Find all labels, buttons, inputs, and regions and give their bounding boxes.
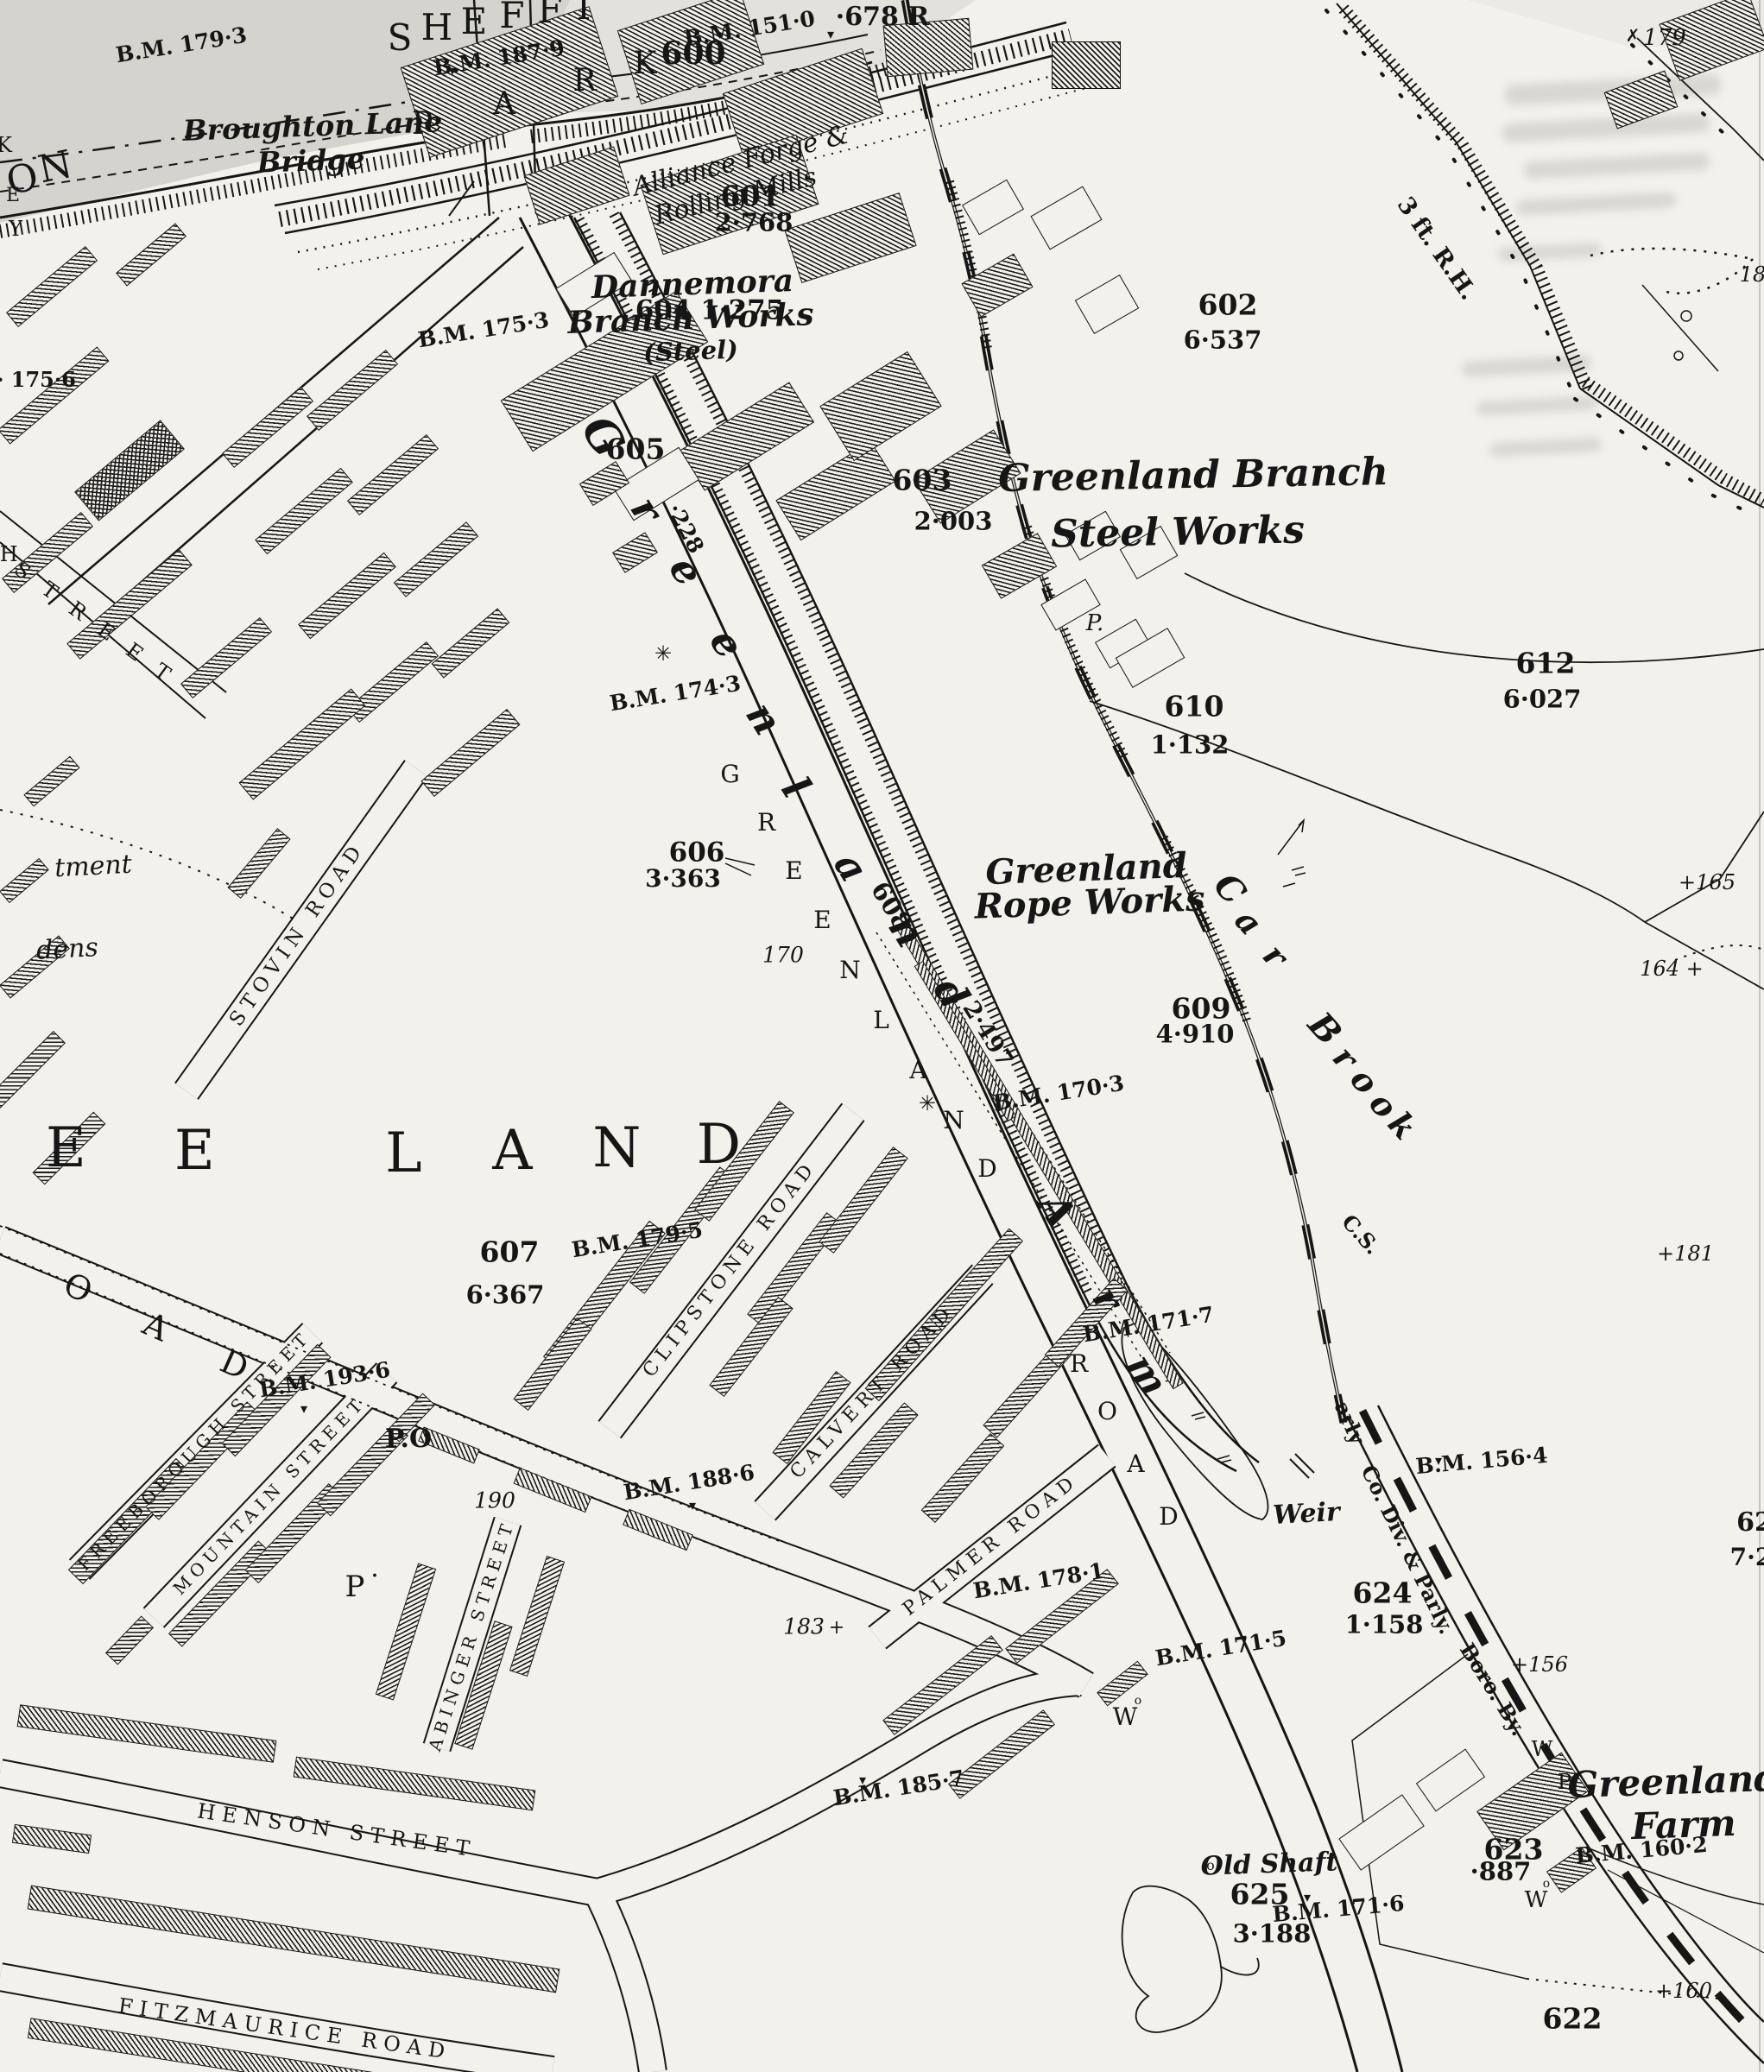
street-henson: HENSON STREET — [196, 1800, 477, 1860]
area-625: 3·188 — [1233, 1922, 1312, 1947]
well-label: W — [1113, 1705, 1138, 1729]
dannemora-works-label: Branch Works — [567, 299, 814, 338]
parcel-610: 610 — [1165, 692, 1224, 721]
well-label: W — [1525, 1889, 1548, 1911]
parcel-678: ·678 R — [836, 4, 929, 30]
canal-name-letter: E — [461, 3, 488, 40]
boundary-cs: C.S. — [1338, 1211, 1384, 1259]
spot-mark: ✗ — [1626, 27, 1641, 44]
greenland-road-letter: R — [757, 811, 783, 835]
car-brook-letter: r — [1327, 1040, 1363, 1075]
greenland-road-letter: A — [1127, 1452, 1152, 1476]
edge-fragment: Y — [9, 218, 22, 239]
area-608: 2·497 — [958, 997, 1017, 1071]
area-606: 3·363 — [645, 867, 721, 891]
car-brook-letter: a — [1230, 903, 1268, 941]
area-603: 2·003 — [914, 509, 993, 534]
boundary-w: W — [1532, 1739, 1553, 1759]
spot-height-164: 164 + — [1640, 958, 1704, 979]
benchmark-175-6: · 175·6 — [0, 370, 76, 390]
edge-fragment: E — [6, 186, 20, 205]
canal-name-letter: F — [537, 0, 562, 28]
benchmark-174-3: B.M. 174·3 — [608, 673, 742, 715]
benchmark-171-5: B.M. 171·5 — [1154, 1627, 1287, 1670]
broughton-lane-bridge-label: Broughton Lane — [182, 107, 443, 144]
greenland-arm-letter: a — [828, 845, 876, 888]
broughton-lane-bridge-label: Bridge — [256, 144, 365, 176]
bm-arrow: ▾ — [300, 1402, 307, 1416]
parcel-622: 622 — [1543, 2005, 1603, 2033]
benchmark-171-6: B.M. 171·6 — [1272, 1892, 1406, 1925]
greenland-road-letter: N — [943, 1109, 971, 1133]
greenland-arm-letter: m — [1120, 1349, 1173, 1403]
edge-parcel-fragment: 62 — [1736, 1510, 1764, 1536]
car-brook-letter: C — [1207, 868, 1251, 911]
area-607: 6·367 — [466, 1283, 545, 1308]
spot-height-170: 170 — [762, 944, 804, 966]
street-fragment: S T R E E T — [10, 558, 179, 688]
spot-height-181: +181 — [1657, 1243, 1714, 1264]
street-fitzmaurice: FITZMAURICE ROAD — [117, 1995, 453, 2063]
area-612: 6·027 — [1503, 687, 1582, 712]
pump-label: P. — [1086, 612, 1104, 635]
benchmark-179-3: B.M. 179·3 — [114, 24, 248, 66]
spot-height-183: 183 — [783, 1616, 825, 1638]
old-shaft-label: Old Shaft — [1200, 1849, 1338, 1880]
parcel-601: 601 — [721, 182, 781, 211]
greenland-road-letter: E — [813, 908, 838, 932]
street-calvert: CALVERT ROAD — [787, 1301, 958, 1482]
area-601: 2·768 — [715, 211, 793, 236]
spot-height-156: +156 — [1511, 1654, 1568, 1675]
parcel-607: 607 — [480, 1238, 540, 1267]
benchmark-175-3: B.M. 175·3 — [416, 309, 550, 351]
district-letter: E — [46, 1121, 87, 1176]
bm-mark: ✳ — [919, 1093, 936, 1114]
spot-mark: + — [829, 1619, 844, 1638]
greenland-arm-letter: e — [704, 622, 751, 664]
area-605: ·228 — [664, 500, 708, 557]
edge-letter: N — [35, 145, 76, 189]
greenland-branch-steel-works-label: Greenland Branch — [998, 453, 1388, 498]
allotment-fragment: tment — [54, 852, 132, 882]
bm-arrow: ▾ — [827, 28, 834, 41]
greenland-branch-steel-works-label: Steel Works — [1051, 511, 1305, 553]
canal-name-letter: H — [421, 9, 453, 46]
parcel-624: 624 — [1353, 1579, 1413, 1608]
canal-name-letter: F — [499, 0, 524, 34]
edge-fragment: 18 — [1740, 264, 1764, 285]
park-letter: K — [634, 48, 657, 79]
street-clipstone: CLIPSTONE ROAD — [640, 1157, 820, 1380]
parcel-606: 606 — [669, 840, 725, 867]
pump-label: P — [345, 1572, 365, 1601]
benchmark-156-4: B.M. 156·4 — [1415, 1444, 1549, 1477]
district-letter: L — [385, 1126, 423, 1181]
spot-height-190: 190 — [474, 1490, 515, 1512]
greenland-arm-letter: r — [1085, 1281, 1129, 1318]
road-letter: A — [138, 1307, 183, 1351]
greenland-road-letter: A — [909, 1058, 934, 1083]
parcel-600: 600 — [661, 38, 725, 69]
park-letter: R — [572, 66, 596, 97]
parcel-612: 612 — [1516, 649, 1576, 678]
labels-layer: B.M. 179·3SHEFFI▾B.M. 187·9B.M. 151·0▾·6… — [0, 0, 1764, 2072]
boundary-parly-fragment: arly — [1331, 1399, 1369, 1448]
street-stovin-road: STOVIN ROAD — [226, 838, 369, 1030]
weir-label: Weir — [1272, 1500, 1340, 1529]
greenland-road-letter: O — [1097, 1399, 1125, 1424]
edge-area-fragment: 7·2 — [1730, 1545, 1764, 1570]
bm-arrow: ▾ — [689, 1499, 696, 1513]
edge-fragment: K — [0, 135, 12, 155]
greenland-road-letter: R — [1070, 1352, 1096, 1376]
point-mark: · — [370, 1563, 379, 1589]
benchmark-179-5: B.M. 179·5 — [570, 1219, 704, 1261]
street-freeborough: FREEBOROUGH STREET — [75, 1327, 314, 1573]
road-letter: O — [59, 1267, 106, 1312]
bm-arrow: ▾ — [859, 1773, 866, 1787]
spot-height-165: +165 — [1679, 872, 1736, 893]
spot-height-179: 179 — [1643, 27, 1686, 49]
bm-mark: ✳ — [654, 643, 672, 664]
greenland-road-letter: D — [977, 1157, 1004, 1181]
greenland-road-letter: E — [785, 859, 810, 883]
greenland-farm-label: Greenland — [1567, 1760, 1764, 1804]
greenland-road-letter: D — [1159, 1505, 1185, 1529]
district-letter: D — [697, 1117, 743, 1172]
district-letter: A — [492, 1123, 534, 1178]
rope-works-label: Rope Works — [974, 881, 1205, 924]
greenland-road-letter: G — [720, 762, 747, 786]
benchmark-160-2: B.M. 160·2 — [1575, 1834, 1709, 1867]
area-610: 1·132 — [1151, 733, 1230, 758]
area-609: 4·910 — [1156, 1022, 1235, 1047]
spot-height-160: +160 — [1655, 1980, 1712, 2001]
car-brook-letter: B — [1302, 1007, 1347, 1052]
greenland-arm-letter: l — [775, 770, 817, 804]
district-letter: N — [592, 1121, 642, 1176]
parcel-603: 603 — [893, 466, 952, 495]
car-brook-letter: r — [1257, 938, 1293, 973]
greenland-arm-letter: A — [1031, 1185, 1083, 1235]
greenland-arm-letter: n — [740, 696, 789, 742]
greenland-road-letter: L — [873, 1008, 897, 1033]
district-letter: E — [174, 1123, 216, 1178]
benchmark-170-3: B.M. 170·3 — [991, 1072, 1125, 1115]
street-mountain: MOUNTAIN STREET — [170, 1393, 369, 1597]
area-623: ·887 — [1470, 1860, 1532, 1885]
street-abinger: ABINGER STREET — [426, 1517, 517, 1753]
park-letter: A — [493, 89, 515, 120]
map-sheet: B.M. 179·3SHEFFI▾B.M. 187·9B.M. 151·0▾·6… — [0, 0, 1764, 2072]
gardens-fragment: dens — [35, 935, 98, 964]
post-office-label: P.O — [385, 1426, 432, 1452]
canal-name-letter: S — [388, 20, 413, 56]
greenland-road-letter: N — [839, 958, 868, 982]
area-602: 6·537 — [1184, 328, 1262, 353]
benchmark-185-7: B.M. 185·7 — [831, 1767, 965, 1810]
canal-name-letter: I — [577, 0, 591, 25]
parcel-602: 602 — [1198, 291, 1258, 319]
area-624: 1·158 — [1345, 1613, 1424, 1638]
greenland-arm-letter: e — [663, 549, 711, 591]
dannemora-works-label: (Steel) — [643, 338, 739, 366]
boundary-note-3ft-rh: 3 ft. R.H. — [1393, 193, 1480, 304]
greenland-arm-letter: r — [624, 490, 669, 529]
benchmark-178-1: B.M. 178·1 — [971, 1560, 1105, 1602]
